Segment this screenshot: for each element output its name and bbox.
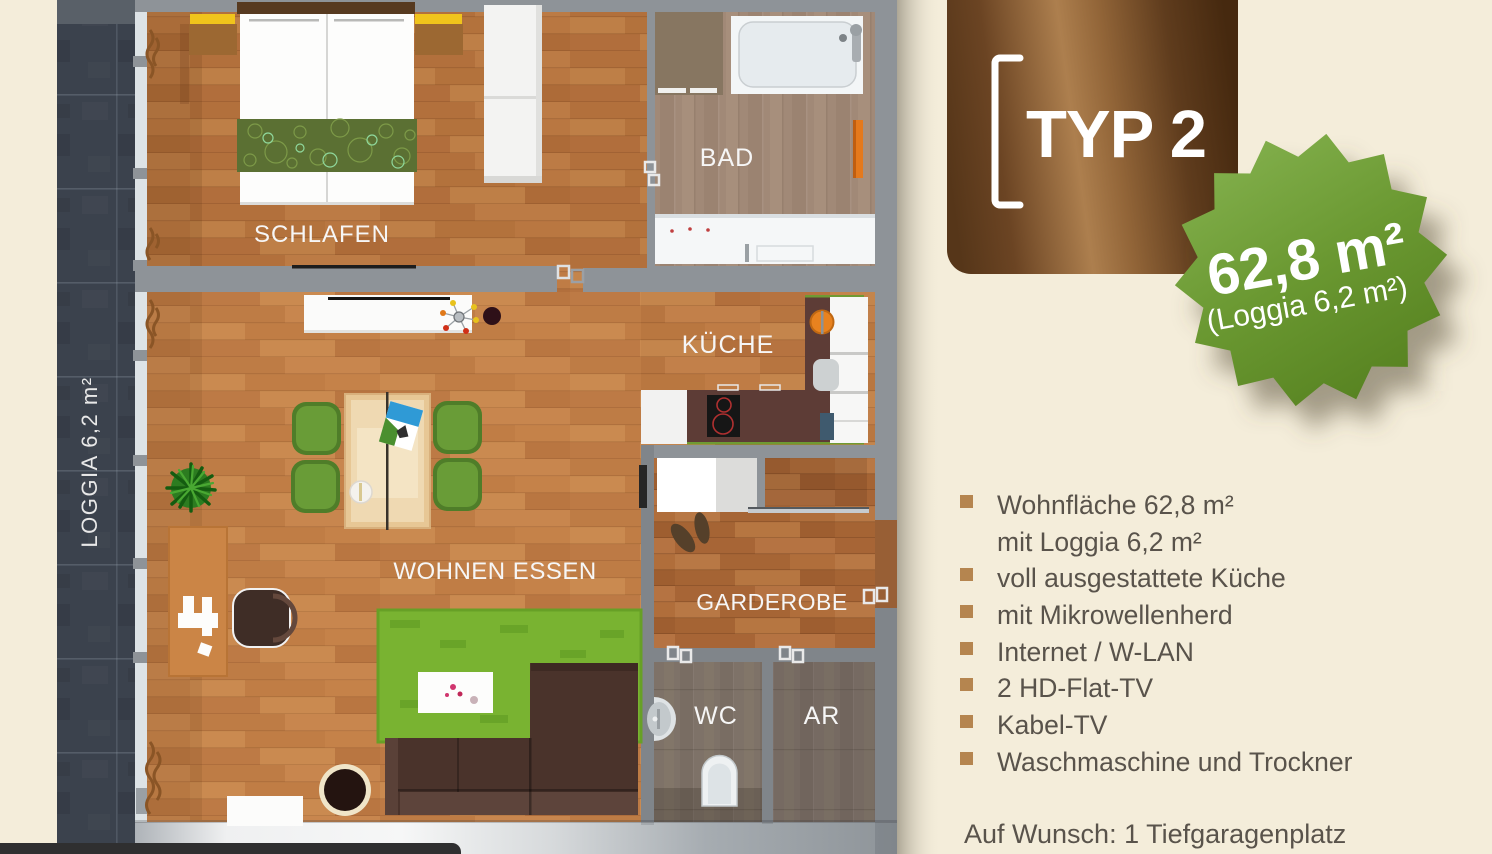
- svg-text:Waschmaschine und Trockner: Waschmaschine und Trockner: [997, 747, 1353, 777]
- svg-text:BAD: BAD: [700, 144, 754, 172]
- svg-text:AR: AR: [804, 702, 841, 730]
- svg-text:GARDEROBE: GARDEROBE: [696, 589, 847, 615]
- svg-text:Auf Wunsch: 1 Tiefgaragenplatz: Auf Wunsch: 1 Tiefgaragenplatz: [964, 819, 1346, 849]
- svg-text:LOGGIA 6,2 m²: LOGGIA 6,2 m²: [77, 376, 102, 547]
- svg-text:WC: WC: [694, 702, 738, 730]
- svg-text:KÜCHE: KÜCHE: [682, 331, 775, 359]
- svg-text:TYP 2: TYP 2: [1026, 97, 1206, 172]
- svg-text:2 HD-Flat-TV: 2 HD-Flat-TV: [997, 673, 1153, 703]
- svg-text:voll ausgestattete Küche: voll ausgestattete Küche: [997, 563, 1286, 593]
- svg-text:WOHNEN ESSEN: WOHNEN ESSEN: [393, 558, 596, 585]
- svg-text:Wohnfläche 62,8 m²: Wohnfläche 62,8 m²: [997, 490, 1234, 520]
- svg-text:SCHLAFEN: SCHLAFEN: [254, 221, 390, 248]
- svg-text:mit Loggia 6,2 m²: mit Loggia 6,2 m²: [997, 527, 1202, 557]
- svg-text:Kabel-TV: Kabel-TV: [997, 710, 1108, 740]
- svg-text:Internet / W-LAN: Internet / W-LAN: [997, 637, 1194, 667]
- svg-text:mit Mikrowellenherd: mit Mikrowellenherd: [997, 600, 1233, 630]
